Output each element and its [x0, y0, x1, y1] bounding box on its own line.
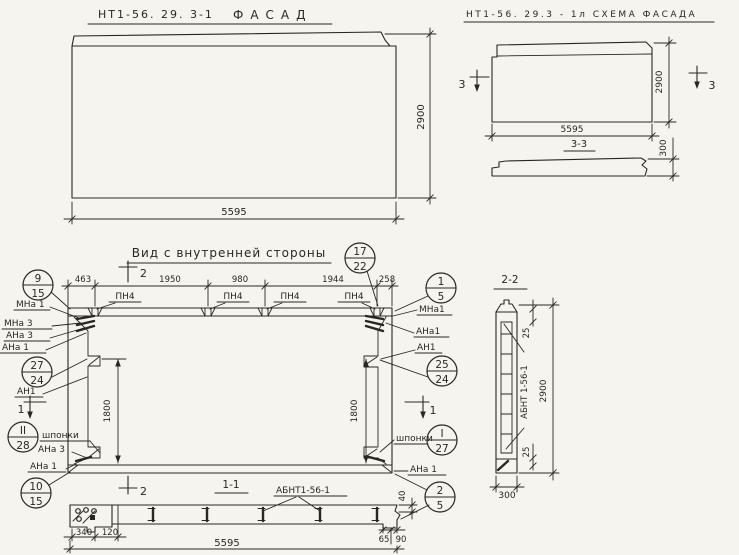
- callout-II-28: II 28: [8, 422, 38, 452]
- facade-height-value: 2900: [416, 104, 427, 129]
- label-ana3b: АНа 3: [38, 445, 65, 455]
- callout-top: II: [20, 425, 26, 437]
- part-label-abnt: АБНТ1-56-1: [276, 486, 330, 496]
- callout-top: 17: [353, 246, 366, 258]
- label-mna1: МНа 1: [16, 300, 45, 310]
- dim-90-value: 90: [396, 535, 407, 545]
- dim-463: 463: [75, 275, 91, 285]
- dim-340-120: 340 120: [64, 505, 126, 541]
- section-mark-3-label: 3: [459, 78, 466, 91]
- callout-bottom: 28: [16, 440, 29, 452]
- corner-hatch: [498, 461, 508, 470]
- section-2-2-title: 2-2: [501, 274, 518, 286]
- section-mark-1-label: 1: [430, 404, 437, 417]
- dim-2900-value: 2900: [539, 379, 549, 402]
- dim-258: 258: [379, 275, 395, 285]
- section-mark-2-label: 2: [140, 267, 147, 280]
- dim-300-value: 300: [498, 491, 515, 501]
- thickness-value: 300: [659, 139, 669, 156]
- loop-labels: ПН4 ПН4 ПН4 ПН4: [97, 292, 375, 309]
- dim-1800-left: 1800: [102, 359, 126, 463]
- rebar-marks: [148, 508, 379, 521]
- inner-title: Вид с внутренней стороны: [132, 246, 326, 260]
- profile-3-3: [492, 158, 647, 176]
- strip-left-detail: [73, 508, 96, 523]
- dim-300-section: 300: [490, 476, 524, 501]
- schema-strip-line: [497, 54, 652, 56]
- label-ana3: АНа 3: [6, 331, 33, 341]
- callout-bottom: 15: [31, 288, 44, 300]
- section-mark-1-right: 1: [405, 396, 437, 419]
- label-an1: АН1: [17, 387, 36, 397]
- reinforcement-ladder: [501, 322, 512, 453]
- weld-marks: [69, 316, 391, 472]
- facade-panel-outline: [72, 46, 396, 198]
- section-mark-1-label: 1: [18, 403, 25, 416]
- schema-view: НТ1-56. 29.3 - 1л СХЕМА ФАСАДА 2900 5595…: [459, 10, 716, 181]
- callout-bottom: 22: [353, 261, 366, 273]
- dim-25-top-value: 25: [522, 328, 532, 339]
- dim-65-90: 65 90: [379, 524, 407, 545]
- facade-top-strip: [72, 32, 390, 46]
- facade-title: ФАСАД: [233, 8, 313, 22]
- section-mark-3-label: 3: [709, 79, 716, 92]
- loop-label-pn4: ПН4: [223, 292, 243, 302]
- label-ana1-r: АНа1: [416, 327, 440, 337]
- callout-I-27: I 27: [427, 425, 457, 455]
- dim-40-value: 40: [398, 491, 408, 502]
- section-2-2-body: [496, 300, 517, 473]
- loop-label-pn4: ПН4: [115, 292, 135, 302]
- callout-27-24: 27 24: [22, 357, 87, 387]
- label-mna3: МНа 3: [4, 319, 33, 329]
- section-mark-2-top: 2: [119, 261, 147, 282]
- dim-980: 980: [232, 275, 248, 285]
- blueprint-canvas: НТ1-56. 29. 3-1 ФАСАД 5595 2900 НТ1-56. …: [0, 0, 739, 555]
- section-mark-2-bottom: 2: [119, 476, 147, 498]
- key-hatch: [89, 357, 99, 365]
- callout-bottom: 5: [437, 500, 444, 512]
- callout-10-15: 10 15: [21, 472, 70, 508]
- schema-dim-height: 2900: [654, 37, 676, 128]
- label-mna1-r: МНа1: [419, 305, 445, 315]
- labels-left: МНа 1 МНа 3 АНа 3 АНа 1 АН1 шпонки АНа 3…: [0, 300, 100, 472]
- facade-dim-width: 5595: [64, 202, 404, 224]
- part-label-abnt-vertical: АБНТ 1-56-1: [520, 365, 530, 419]
- loop-label-pn4: ПН4: [280, 292, 300, 302]
- section-2-2: 2-2 25 АБНТ 1-56-1 25: [490, 274, 559, 501]
- section-mark-3-right: 3: [689, 66, 716, 92]
- dim-340-value: 340: [76, 528, 92, 538]
- loop-label-pn4: ПН4: [344, 292, 364, 302]
- callout-top: 9: [35, 273, 42, 285]
- section-1-1-title: 1-1: [222, 479, 239, 491]
- dim-1800-value: 1800: [103, 399, 113, 422]
- inner-left-edge-profile: [74, 317, 100, 464]
- label-ana1b-r: АНа 1: [410, 465, 437, 475]
- callout-bottom: 24: [30, 375, 44, 387]
- inner-panel-outline: [68, 308, 392, 473]
- dim-1944: 1944: [322, 275, 344, 285]
- dim-25-bottom: 25: [522, 444, 536, 470]
- schema-title: НТ1-56. 29.3 - 1л СХЕМА ФАСАДА: [466, 10, 697, 20]
- section-1-1: 1-1 АБНТ1-56-1 340: [64, 479, 417, 553]
- facade-width-value: 5595: [221, 207, 246, 218]
- label-ana1b: АНа 1: [30, 462, 57, 472]
- section-3-3-title: 3-3: [571, 139, 587, 150]
- schema-width-value: 5595: [561, 125, 584, 135]
- callout-bottom: 24: [435, 374, 449, 386]
- dim-25-bottom-value: 25: [522, 447, 532, 458]
- callout-bottom: 27: [435, 443, 448, 455]
- callout-top: 27: [30, 360, 43, 372]
- callout-bottom: 5: [438, 291, 445, 303]
- section-mark-3-left: 3: [459, 70, 490, 92]
- label-ana1: АНа 1: [2, 343, 29, 353]
- inner-right-edge-profile: [364, 317, 386, 464]
- drawing-sheet: НТ1-56. 29. 3-1 ФАСАД 5595 2900 НТ1-56. …: [0, 0, 739, 555]
- facade-dim-height: 2900: [385, 28, 436, 204]
- callout-top: 10: [29, 481, 42, 493]
- callout-bottom: 15: [29, 496, 42, 508]
- callout-top: 25: [435, 359, 448, 371]
- dim-300-thickness: 300: [647, 138, 679, 181]
- callout-top: 1: [438, 276, 445, 288]
- label-keys-left: шпонки: [42, 431, 79, 441]
- section-mark-1-left: 1: [18, 396, 47, 419]
- section-mark-2-label: 2: [140, 485, 147, 498]
- callout-top: 2: [437, 485, 444, 497]
- dim-120-value: 120: [102, 528, 118, 538]
- dim-1800-value: 1800: [350, 399, 360, 422]
- facade-view: НТ1-56. 29. 3-1 ФАСАД 5595 2900: [64, 8, 436, 224]
- inner-view: Вид с внутренней стороны 2 2 463 1950: [0, 243, 457, 519]
- lifting-loops: [88, 308, 384, 316]
- dim-65-value: 65: [379, 535, 390, 545]
- label-an1-r: АН1: [417, 343, 436, 353]
- dim-1950: 1950: [159, 275, 181, 285]
- dim-1800-right: 1800: [350, 359, 369, 463]
- callout-top: I: [440, 428, 443, 440]
- facade-code: НТ1-56. 29. 3-1: [98, 8, 214, 21]
- dim-40: 40: [398, 491, 417, 519]
- dim-25-top: 25: [522, 300, 536, 338]
- dim-5595-value: 5595: [214, 538, 239, 549]
- schema-height-value: 2900: [655, 70, 665, 93]
